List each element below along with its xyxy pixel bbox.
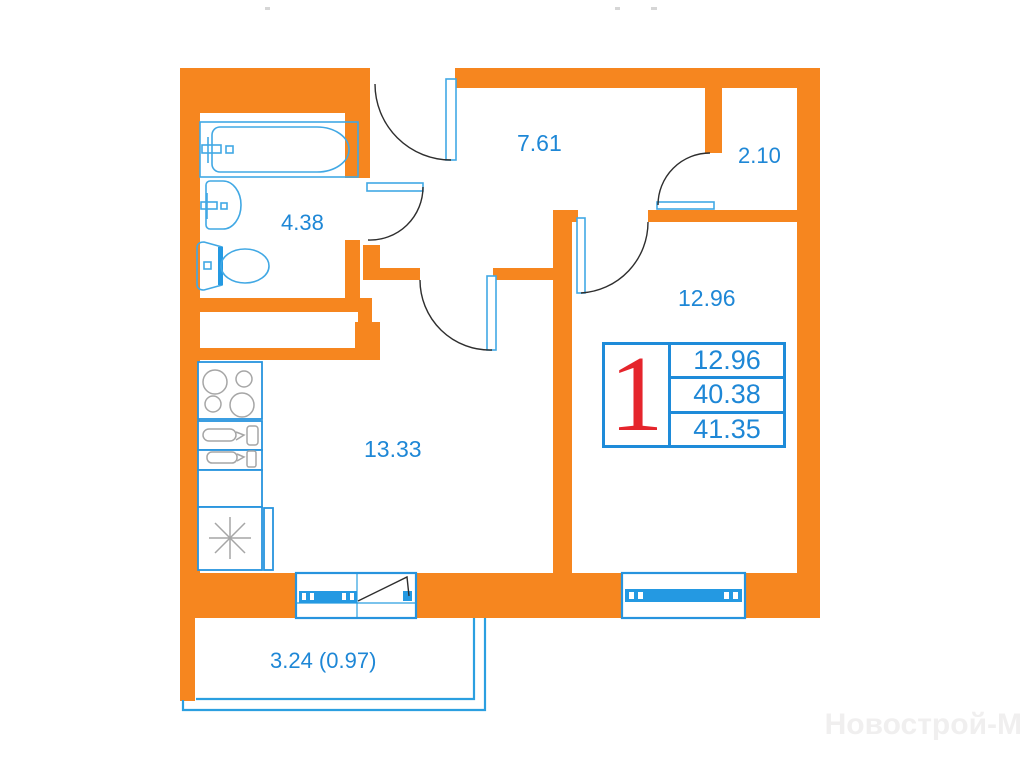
wall-corridor-right-stub — [493, 268, 555, 280]
dimension-mark-icon — [265, 7, 270, 10]
floor-plan-drawing — [0, 0, 1024, 768]
sink-faucet-icon — [201, 202, 217, 209]
balcony-window-glass — [299, 591, 357, 603]
kitchen-units — [198, 362, 273, 570]
wardrobe-door-swing — [658, 153, 710, 205]
window-mark — [733, 592, 738, 599]
kitchen-door-leaf — [487, 276, 496, 350]
apartment-areas: 12.96 40.38 41.35 — [671, 345, 783, 445]
dimension-marks — [265, 7, 657, 10]
wall-kitchen-top-jog — [355, 322, 380, 354]
window-mark — [310, 593, 314, 600]
window-mark — [629, 592, 634, 599]
dimension-mark-icon — [615, 7, 620, 10]
developer-watermark: Новострой-М — [825, 708, 1022, 742]
kitchen-living-area-label: 13.33 — [364, 436, 422, 463]
floor-plan: 4.38 7.61 2.10 12.96 13.33 3.24 (0.97) 1… — [0, 0, 1024, 768]
wall-between-rooms — [553, 222, 572, 573]
area-value-total: 41.35 — [671, 414, 783, 445]
wardrobe-area-label: 2.10 — [738, 143, 781, 169]
wall-bathroom-top — [180, 88, 370, 113]
window-mark — [638, 592, 643, 599]
wall-niche-bottom — [180, 348, 380, 360]
entrance-door-swing — [375, 84, 451, 160]
bathroom-door-leaf — [367, 183, 423, 191]
wall-bathroom-bottom — [183, 298, 372, 312]
bathtub-drain-icon — [226, 146, 233, 153]
wall-corridor-left-stub — [365, 268, 420, 280]
fridge-snowflake-icon — [209, 517, 251, 559]
living-room-door-leaf — [577, 218, 585, 293]
wall-top-left — [180, 68, 370, 88]
window-mark — [302, 593, 306, 600]
apartment-number: 1 — [605, 345, 671, 445]
wall-left — [180, 68, 200, 618]
hallway-area-label: 7.61 — [517, 130, 562, 157]
wall-room-top-right — [648, 210, 797, 222]
toilet-button-icon — [204, 262, 211, 269]
wall-balcony-left — [180, 618, 195, 701]
sink-drain-icon — [221, 203, 227, 209]
wall-wardrobe-partition — [705, 88, 722, 153]
dimension-mark-icon — [651, 7, 657, 10]
living-room-area-label: 12.96 — [678, 285, 736, 312]
window-mark — [724, 592, 729, 599]
wall-right — [797, 68, 820, 618]
kitchen-end-panel — [264, 508, 273, 570]
apartment-info-table: 1 12.96 40.38 41.35 — [602, 342, 786, 448]
area-value-without-balcony: 40.38 — [671, 379, 783, 413]
wardrobe-door-leaf — [657, 202, 714, 209]
bathroom-door-swing — [368, 187, 423, 240]
area-value-living: 12.96 — [671, 345, 783, 379]
window-mark — [350, 593, 354, 600]
window-mark — [342, 593, 346, 600]
kitchen-cabinet-icon — [198, 470, 262, 507]
bathroom-area-label: 4.38 — [281, 210, 324, 236]
balcony-area-label: 3.24 (0.97) — [270, 648, 376, 674]
balcony-door-hinge — [403, 591, 412, 601]
living-room-door-swing — [581, 222, 648, 293]
kitchen-door-swing — [420, 280, 492, 350]
entrance-door-leaf — [446, 79, 456, 160]
wall-top-right — [455, 68, 820, 88]
wall-room-top-left — [553, 210, 578, 222]
sink-icon — [206, 181, 241, 229]
bathroom-fixtures — [197, 122, 358, 290]
toilet-bowl-icon — [221, 249, 269, 283]
